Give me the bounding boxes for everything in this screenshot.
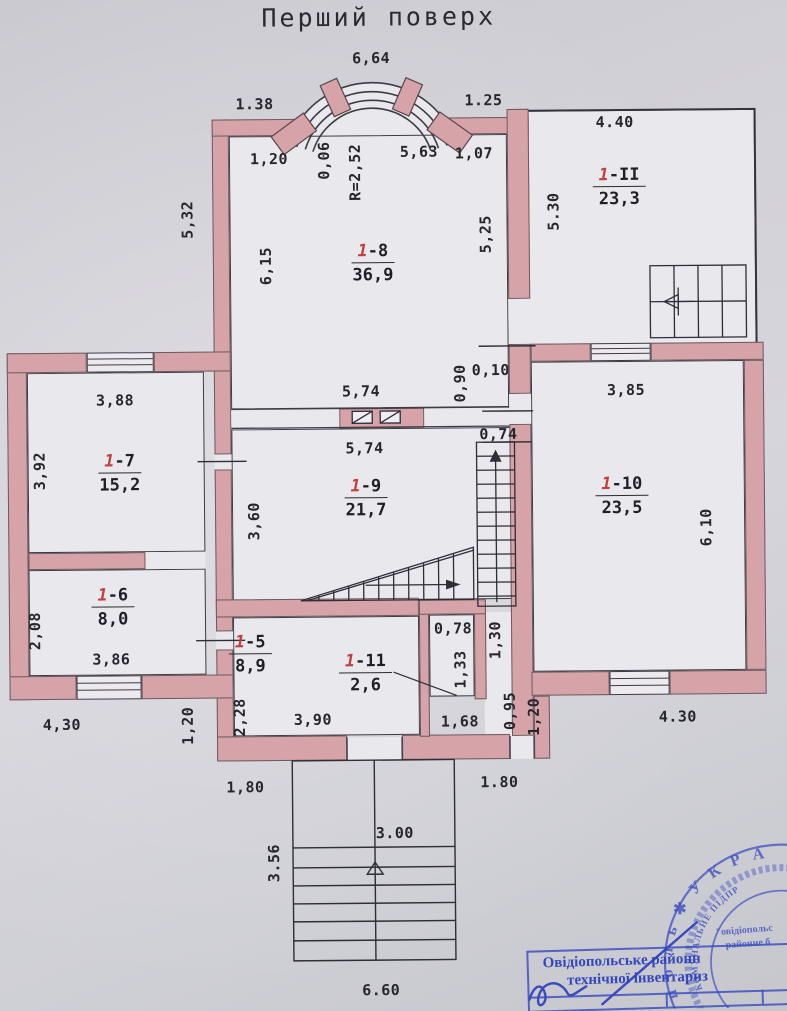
door-opening	[508, 299, 530, 344]
dim-wing-430: 4,30	[43, 716, 81, 734]
dim-arc-left: 1.38	[235, 95, 273, 113]
dim-annex-left: 5.30	[544, 192, 562, 230]
dim-r6-left: 2,08	[26, 612, 44, 650]
door-opening	[509, 394, 531, 424]
dim-r8-bottom: 5,74	[342, 382, 380, 400]
wall	[7, 353, 87, 374]
wall	[744, 360, 767, 670]
window	[76, 675, 141, 700]
dim-porch-top: 3.00	[376, 824, 414, 842]
bti-stamp: Овідіопольське районн технічної інвентар…	[526, 942, 787, 1011]
wall	[28, 552, 145, 570]
room-label-1-7: 1-7 15,2	[98, 451, 141, 495]
wall	[419, 599, 486, 615]
dim-arc-right: 1.25	[464, 91, 502, 109]
dim-pass-010: 0,10	[472, 361, 510, 379]
wall	[154, 351, 231, 372]
wall	[509, 424, 534, 736]
dim-r8-top-left: 1,20	[250, 150, 288, 168]
room-label-1-9: 1-9 21,7	[344, 476, 387, 520]
wall	[217, 735, 347, 761]
wall	[531, 343, 591, 362]
room-label-1-11-annex: 1-II 23,3	[593, 165, 646, 209]
dim-porch-right: 1.80	[480, 773, 518, 791]
dim-r7-left: 3,92	[31, 452, 49, 490]
room-label-1-11: 1-11 2,6	[339, 651, 392, 695]
floor-plan-drawing: Перший поверх	[0, 0, 787, 1011]
dim-r10-right: 6,10	[697, 508, 715, 546]
window	[591, 343, 651, 362]
door-opening	[215, 454, 232, 469]
wall	[507, 109, 531, 299]
door-opening	[510, 736, 534, 759]
dim-r8-right: 5,25	[476, 215, 494, 253]
stamp-divider	[762, 990, 764, 1004]
floor-plan-photo: Перший поверх	[0, 0, 787, 1011]
dim-r8-left: 6,15	[257, 247, 275, 285]
wall	[651, 342, 764, 361]
dim-annex-top: 4.40	[596, 113, 634, 131]
wall	[419, 600, 430, 737]
room-label-1-10: 1-10 23,5	[595, 474, 648, 518]
room-label-1-8: 1-8 36,9	[351, 241, 394, 285]
wall	[212, 119, 299, 137]
dim-bottom-width: 6.60	[362, 981, 400, 999]
wall	[141, 674, 233, 699]
wall	[212, 119, 232, 454]
dim-r7-top: 3,88	[96, 391, 134, 409]
dim-stair-top: 0,74	[479, 425, 517, 443]
stamp-rule	[530, 989, 787, 999]
door-opening	[231, 408, 339, 429]
wall	[669, 670, 766, 695]
stamp-org-line2: технічної інвентариз	[567, 968, 708, 989]
window	[609, 671, 669, 696]
stamp-divider	[666, 993, 668, 1007]
door-opening	[145, 552, 205, 570]
wall	[9, 676, 76, 701]
window	[87, 352, 154, 373]
dim-porch-side: 3.56	[265, 844, 283, 882]
dim-right-430: 4.30	[659, 707, 697, 725]
dim-pass-090: 0,90	[451, 364, 469, 402]
dim-r9-left: 3,60	[245, 502, 263, 540]
dim-left-outer: 5,32	[178, 201, 196, 239]
dim-r5-bottom: 3,90	[294, 711, 332, 729]
dim-closet-h: 1,33	[451, 650, 469, 688]
dim-r6-bottom: 3,86	[92, 650, 130, 668]
dim-radius: R=2,52	[346, 144, 364, 201]
porch-stairs	[292, 759, 456, 960]
dim-pass-168: 1,68	[441, 712, 479, 730]
wall	[402, 734, 510, 760]
dim-r9-top: 5,74	[345, 439, 383, 457]
dim-arc-rise: 0,06	[315, 141, 333, 179]
room-label-1-5: 1-5 8,9	[229, 632, 272, 676]
seal-small-text-1: "овідіопольс	[715, 923, 774, 939]
wall	[531, 671, 609, 696]
dim-r8-top: 5,63	[400, 143, 438, 161]
dim-back-120: 1,20	[525, 698, 543, 736]
room-label-1-6: 1-6 8,0	[91, 585, 134, 629]
dim-wing-120: 1,20	[179, 707, 197, 745]
dim-stair-w: 1,30	[486, 621, 504, 659]
dim-porch-left: 1,80	[226, 778, 264, 796]
dim-r10-top: 3,85	[607, 381, 645, 399]
dim-closet-w: 0,78	[434, 619, 472, 637]
page-title: Перший поверх	[261, 2, 496, 33]
room-1-11-annex	[529, 109, 757, 344]
entrance-opening	[347, 737, 402, 760]
dim-r8-top-right: 1,07	[455, 144, 493, 162]
dim-r5-left: 2,28	[231, 698, 249, 736]
wall	[216, 598, 419, 618]
vent-wall-block	[339, 408, 424, 429]
dim-top-width: 6,64	[352, 49, 390, 67]
dim-back-095: 0,95	[501, 692, 519, 730]
wall	[509, 344, 531, 394]
